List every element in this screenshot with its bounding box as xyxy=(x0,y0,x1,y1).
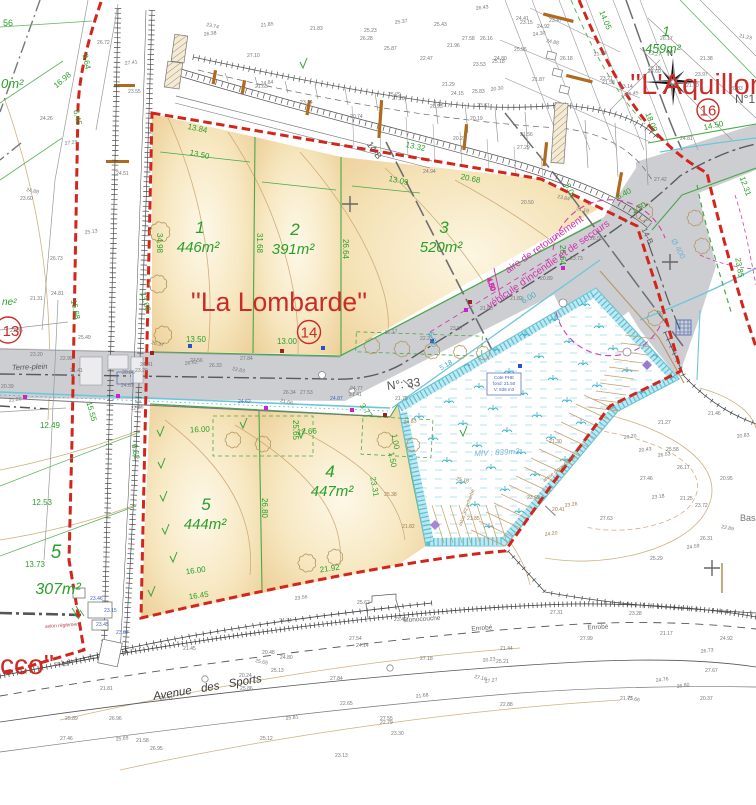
svg-text:27.55: 27.55 xyxy=(380,716,393,722)
svg-text:23.29: 23.29 xyxy=(135,368,148,374)
svg-text:25.58: 25.58 xyxy=(666,447,679,453)
svg-text:23.87: 23.87 xyxy=(116,630,129,636)
svg-text:20.95: 20.95 xyxy=(720,476,733,482)
svg-text:24.81: 24.81 xyxy=(51,291,64,297)
svg-text:307m²: 307m² xyxy=(35,581,81,598)
svg-text:27.63: 27.63 xyxy=(600,516,613,522)
svg-text:25.38: 25.38 xyxy=(384,492,397,498)
svg-text:27.42: 27.42 xyxy=(654,177,667,183)
svg-text:23.15: 23.15 xyxy=(520,20,533,26)
svg-text:24.80: 24.80 xyxy=(280,655,293,661)
svg-text:23.14: 23.14 xyxy=(620,84,633,90)
svg-text:Cote PHE: Cote PHE xyxy=(494,375,514,380)
svg-text:21.45: 21.45 xyxy=(183,646,196,652)
svg-text:27.29: 27.29 xyxy=(517,145,530,151)
svg-text:21.82: 21.82 xyxy=(510,296,523,302)
svg-text:23.14: 23.14 xyxy=(300,100,313,106)
svg-text:446m²: 446m² xyxy=(177,239,221,256)
svg-text:25.55: 25.55 xyxy=(514,47,527,53)
svg-text:27.31: 27.31 xyxy=(550,610,563,616)
svg-text:24.94: 24.94 xyxy=(423,169,436,175)
svg-text:21.38: 21.38 xyxy=(700,56,713,62)
svg-text:23.47: 23.47 xyxy=(549,18,562,24)
svg-text:34.98: 34.98 xyxy=(155,233,164,254)
svg-text:23.45: 23.45 xyxy=(96,622,109,628)
svg-text:N°1: N°1 xyxy=(735,92,755,106)
svg-text:25.29: 25.29 xyxy=(650,556,663,562)
svg-text:24.41: 24.41 xyxy=(140,362,153,368)
svg-text:2: 2 xyxy=(289,220,300,239)
svg-text:23.97: 23.97 xyxy=(695,72,708,78)
svg-text:26.17: 26.17 xyxy=(660,36,673,42)
svg-text:Terre-plein: Terre-plein xyxy=(12,362,48,372)
svg-text:391m²: 391m² xyxy=(272,241,316,258)
svg-text:25.49: 25.49 xyxy=(78,335,91,341)
svg-text:26.96: 26.96 xyxy=(109,716,122,722)
svg-text:23.28: 23.28 xyxy=(629,611,642,617)
svg-text:23.13: 23.13 xyxy=(335,753,348,759)
svg-text:24.74: 24.74 xyxy=(279,618,292,624)
svg-text:26.17: 26.17 xyxy=(677,465,690,471)
svg-text:23.53: 23.53 xyxy=(473,62,486,68)
svg-text:26.93: 26.93 xyxy=(430,104,443,110)
svg-text:23.20: 23.20 xyxy=(30,352,43,358)
svg-text:23.72: 23.72 xyxy=(695,503,708,509)
svg-text:23.57: 23.57 xyxy=(450,326,463,332)
svg-text:12.49: 12.49 xyxy=(40,421,61,430)
svg-text:26.18: 26.18 xyxy=(560,56,573,62)
svg-text:20.86: 20.86 xyxy=(122,370,135,376)
svg-text:20.37: 20.37 xyxy=(700,696,713,702)
svg-text:23.60: 23.60 xyxy=(20,196,33,202)
svg-text:27.56: 27.56 xyxy=(190,358,203,364)
svg-text:20.19: 20.19 xyxy=(470,116,483,122)
svg-text:4: 4 xyxy=(325,462,334,481)
svg-text:22.99: 22.99 xyxy=(60,356,73,362)
svg-text:26.34: 26.34 xyxy=(283,390,296,396)
svg-text:25.29: 25.29 xyxy=(388,92,401,98)
svg-text:22.47: 22.47 xyxy=(420,56,433,62)
svg-text:21.46: 21.46 xyxy=(708,411,721,417)
svg-text:21.85: 21.85 xyxy=(467,516,480,522)
svg-text:22.23: 22.23 xyxy=(420,336,433,342)
svg-text:23.69: 23.69 xyxy=(527,495,540,501)
svg-text:20.21: 20.21 xyxy=(453,136,466,142)
svg-text:26.95: 26.95 xyxy=(150,746,163,752)
svg-text:27.99: 27.99 xyxy=(580,636,593,642)
svg-text:25.87: 25.87 xyxy=(384,46,397,52)
svg-text:21.65: 21.65 xyxy=(255,84,268,90)
svg-text:27.84: 27.84 xyxy=(240,356,253,362)
svg-text:25.19: 25.19 xyxy=(648,66,661,72)
svg-text:24.15: 24.15 xyxy=(451,91,464,97)
svg-text:27.46: 27.46 xyxy=(640,476,653,482)
svg-text:21.17: 21.17 xyxy=(660,631,673,637)
svg-text:27.46: 27.46 xyxy=(60,736,73,742)
svg-text:22.88: 22.88 xyxy=(500,702,513,708)
svg-text:27.84: 27.84 xyxy=(330,676,343,682)
svg-text:21.82: 21.82 xyxy=(402,524,415,530)
svg-text:444m²: 444m² xyxy=(184,516,228,533)
svg-text:26.50: 26.50 xyxy=(590,236,603,242)
svg-text:24.87: 24.87 xyxy=(330,396,343,402)
svg-text:16: 16 xyxy=(700,103,717,120)
svg-text:24.92: 24.92 xyxy=(720,636,733,642)
svg-text:0m²: 0m² xyxy=(1,76,24,91)
svg-text:21.44: 21.44 xyxy=(500,646,513,652)
svg-text:25.21: 25.21 xyxy=(496,659,509,665)
svg-text:20.48: 20.48 xyxy=(262,650,275,656)
svg-text:20.39: 20.39 xyxy=(1,384,14,390)
svg-text:1: 1 xyxy=(195,218,204,237)
svg-text:25.86: 25.86 xyxy=(240,686,253,692)
svg-text:Bassi: Bassi xyxy=(740,513,756,523)
svg-text:21.31: 21.31 xyxy=(30,296,43,302)
svg-text:27.53: 27.53 xyxy=(300,390,313,396)
svg-text:27.54: 27.54 xyxy=(349,636,362,642)
svg-text:23.21: 23.21 xyxy=(600,76,613,82)
svg-text:25.43: 25.43 xyxy=(434,22,447,28)
svg-text:20.55: 20.55 xyxy=(55,662,68,668)
svg-text:''La Lombarde'': ''La Lombarde'' xyxy=(191,287,367,317)
svg-text:Enrobé: Enrobé xyxy=(471,624,493,632)
svg-text:fond: 21.50: fond: 21.50 xyxy=(493,381,516,386)
svg-text:21.29: 21.29 xyxy=(442,82,455,88)
svg-text:447m²: 447m² xyxy=(311,483,355,500)
svg-text:21.41: 21.41 xyxy=(349,392,362,398)
svg-text:13.73: 13.73 xyxy=(25,560,46,569)
svg-text:25.83: 25.83 xyxy=(472,89,485,95)
svg-text:24.26: 24.26 xyxy=(40,116,53,122)
svg-text:21.41: 21.41 xyxy=(70,368,83,374)
svg-text:13.00: 13.00 xyxy=(277,337,298,346)
svg-text:24.14: 24.14 xyxy=(356,643,369,649)
svg-text:21.80: 21.80 xyxy=(480,306,493,312)
svg-text:25.13: 25.13 xyxy=(271,668,284,674)
svg-text:31.68: 31.68 xyxy=(255,233,264,254)
svg-text:24.77: 24.77 xyxy=(350,386,363,392)
svg-text:23.61: 23.61 xyxy=(477,103,490,109)
svg-text:21.73: 21.73 xyxy=(620,696,633,702)
svg-text:27.10: 27.10 xyxy=(247,53,260,59)
svg-text:24.61: 24.61 xyxy=(121,383,134,389)
svg-text:20.74: 20.74 xyxy=(350,114,363,120)
svg-text:5: 5 xyxy=(51,542,62,563)
svg-text:21.56: 21.56 xyxy=(520,132,533,138)
svg-text:21.75: 21.75 xyxy=(395,396,408,402)
svg-text:25.62: 25.62 xyxy=(357,600,370,606)
svg-text:24.81: 24.81 xyxy=(680,136,693,142)
svg-text:26.80: 26.80 xyxy=(260,498,269,519)
svg-text:21.25: 21.25 xyxy=(680,496,693,502)
svg-text:27.67: 27.67 xyxy=(705,668,718,674)
svg-text:24.51: 24.51 xyxy=(116,171,129,177)
svg-text:23.85: 23.85 xyxy=(10,328,23,334)
svg-text:25.53: 25.53 xyxy=(160,696,173,702)
svg-text:22.65: 22.65 xyxy=(340,701,353,707)
svg-text:20.50: 20.50 xyxy=(521,200,534,206)
svg-text:23.42: 23.42 xyxy=(394,617,407,623)
svg-text:26.73: 26.73 xyxy=(50,256,63,262)
svg-text:23.73: 23.73 xyxy=(570,256,583,262)
svg-text:26.31: 26.31 xyxy=(700,536,713,542)
svg-text:25.18: 25.18 xyxy=(492,59,505,65)
svg-text:20.41: 20.41 xyxy=(552,507,565,513)
svg-text:21.58: 21.58 xyxy=(136,738,149,744)
svg-text:26.28: 26.28 xyxy=(360,36,373,42)
svg-text:20.89: 20.89 xyxy=(540,276,553,282)
svg-text:26.33: 26.33 xyxy=(209,363,222,369)
svg-text:3: 3 xyxy=(439,218,449,237)
svg-text:12.53: 12.53 xyxy=(32,498,53,507)
svg-text:23.55: 23.55 xyxy=(128,89,141,95)
svg-text:20.83: 20.83 xyxy=(730,86,743,92)
svg-text:ne²: ne² xyxy=(2,297,17,308)
svg-text:27.18: 27.18 xyxy=(420,656,433,662)
svg-text:21.87: 21.87 xyxy=(532,77,545,83)
svg-text:13.50: 13.50 xyxy=(186,335,207,344)
svg-text:21.30: 21.30 xyxy=(549,439,562,445)
svg-text:21.90: 21.90 xyxy=(686,83,699,89)
svg-text:5: 5 xyxy=(201,495,211,514)
svg-text:27.58: 27.58 xyxy=(462,36,475,42)
svg-text:20.24: 20.24 xyxy=(239,673,252,679)
svg-text:V: 839 m3: V: 839 m3 xyxy=(494,387,515,392)
svg-text:21.96: 21.96 xyxy=(447,43,460,49)
svg-text:25.89: 25.89 xyxy=(65,716,78,722)
svg-text:23.15: 23.15 xyxy=(104,608,117,614)
svg-text:21.81: 21.81 xyxy=(100,686,113,692)
svg-text:cco'': cco'' xyxy=(0,649,54,680)
svg-text:23.46: 23.46 xyxy=(90,596,103,602)
svg-text:24.92: 24.92 xyxy=(537,24,550,30)
svg-text:25.65: 25.65 xyxy=(291,420,300,441)
svg-text:26.16: 26.16 xyxy=(480,36,493,42)
svg-text:21.27: 21.27 xyxy=(658,420,671,426)
svg-text:56: 56 xyxy=(3,18,13,28)
svg-text:16.00: 16.00 xyxy=(190,424,211,434)
svg-text:25.23: 25.23 xyxy=(364,28,377,34)
svg-text:23.30: 23.30 xyxy=(391,731,404,737)
svg-text:26.72: 26.72 xyxy=(97,40,110,46)
svg-text:520m²: 520m² xyxy=(420,239,464,256)
svg-text:14: 14 xyxy=(301,325,318,342)
svg-text:25.12: 25.12 xyxy=(260,736,273,742)
svg-text:24.62: 24.62 xyxy=(238,399,251,405)
svg-text:26.64: 26.64 xyxy=(341,239,350,260)
svg-text:Enrobé: Enrobé xyxy=(587,624,609,632)
svg-text:21.83: 21.83 xyxy=(310,26,323,32)
